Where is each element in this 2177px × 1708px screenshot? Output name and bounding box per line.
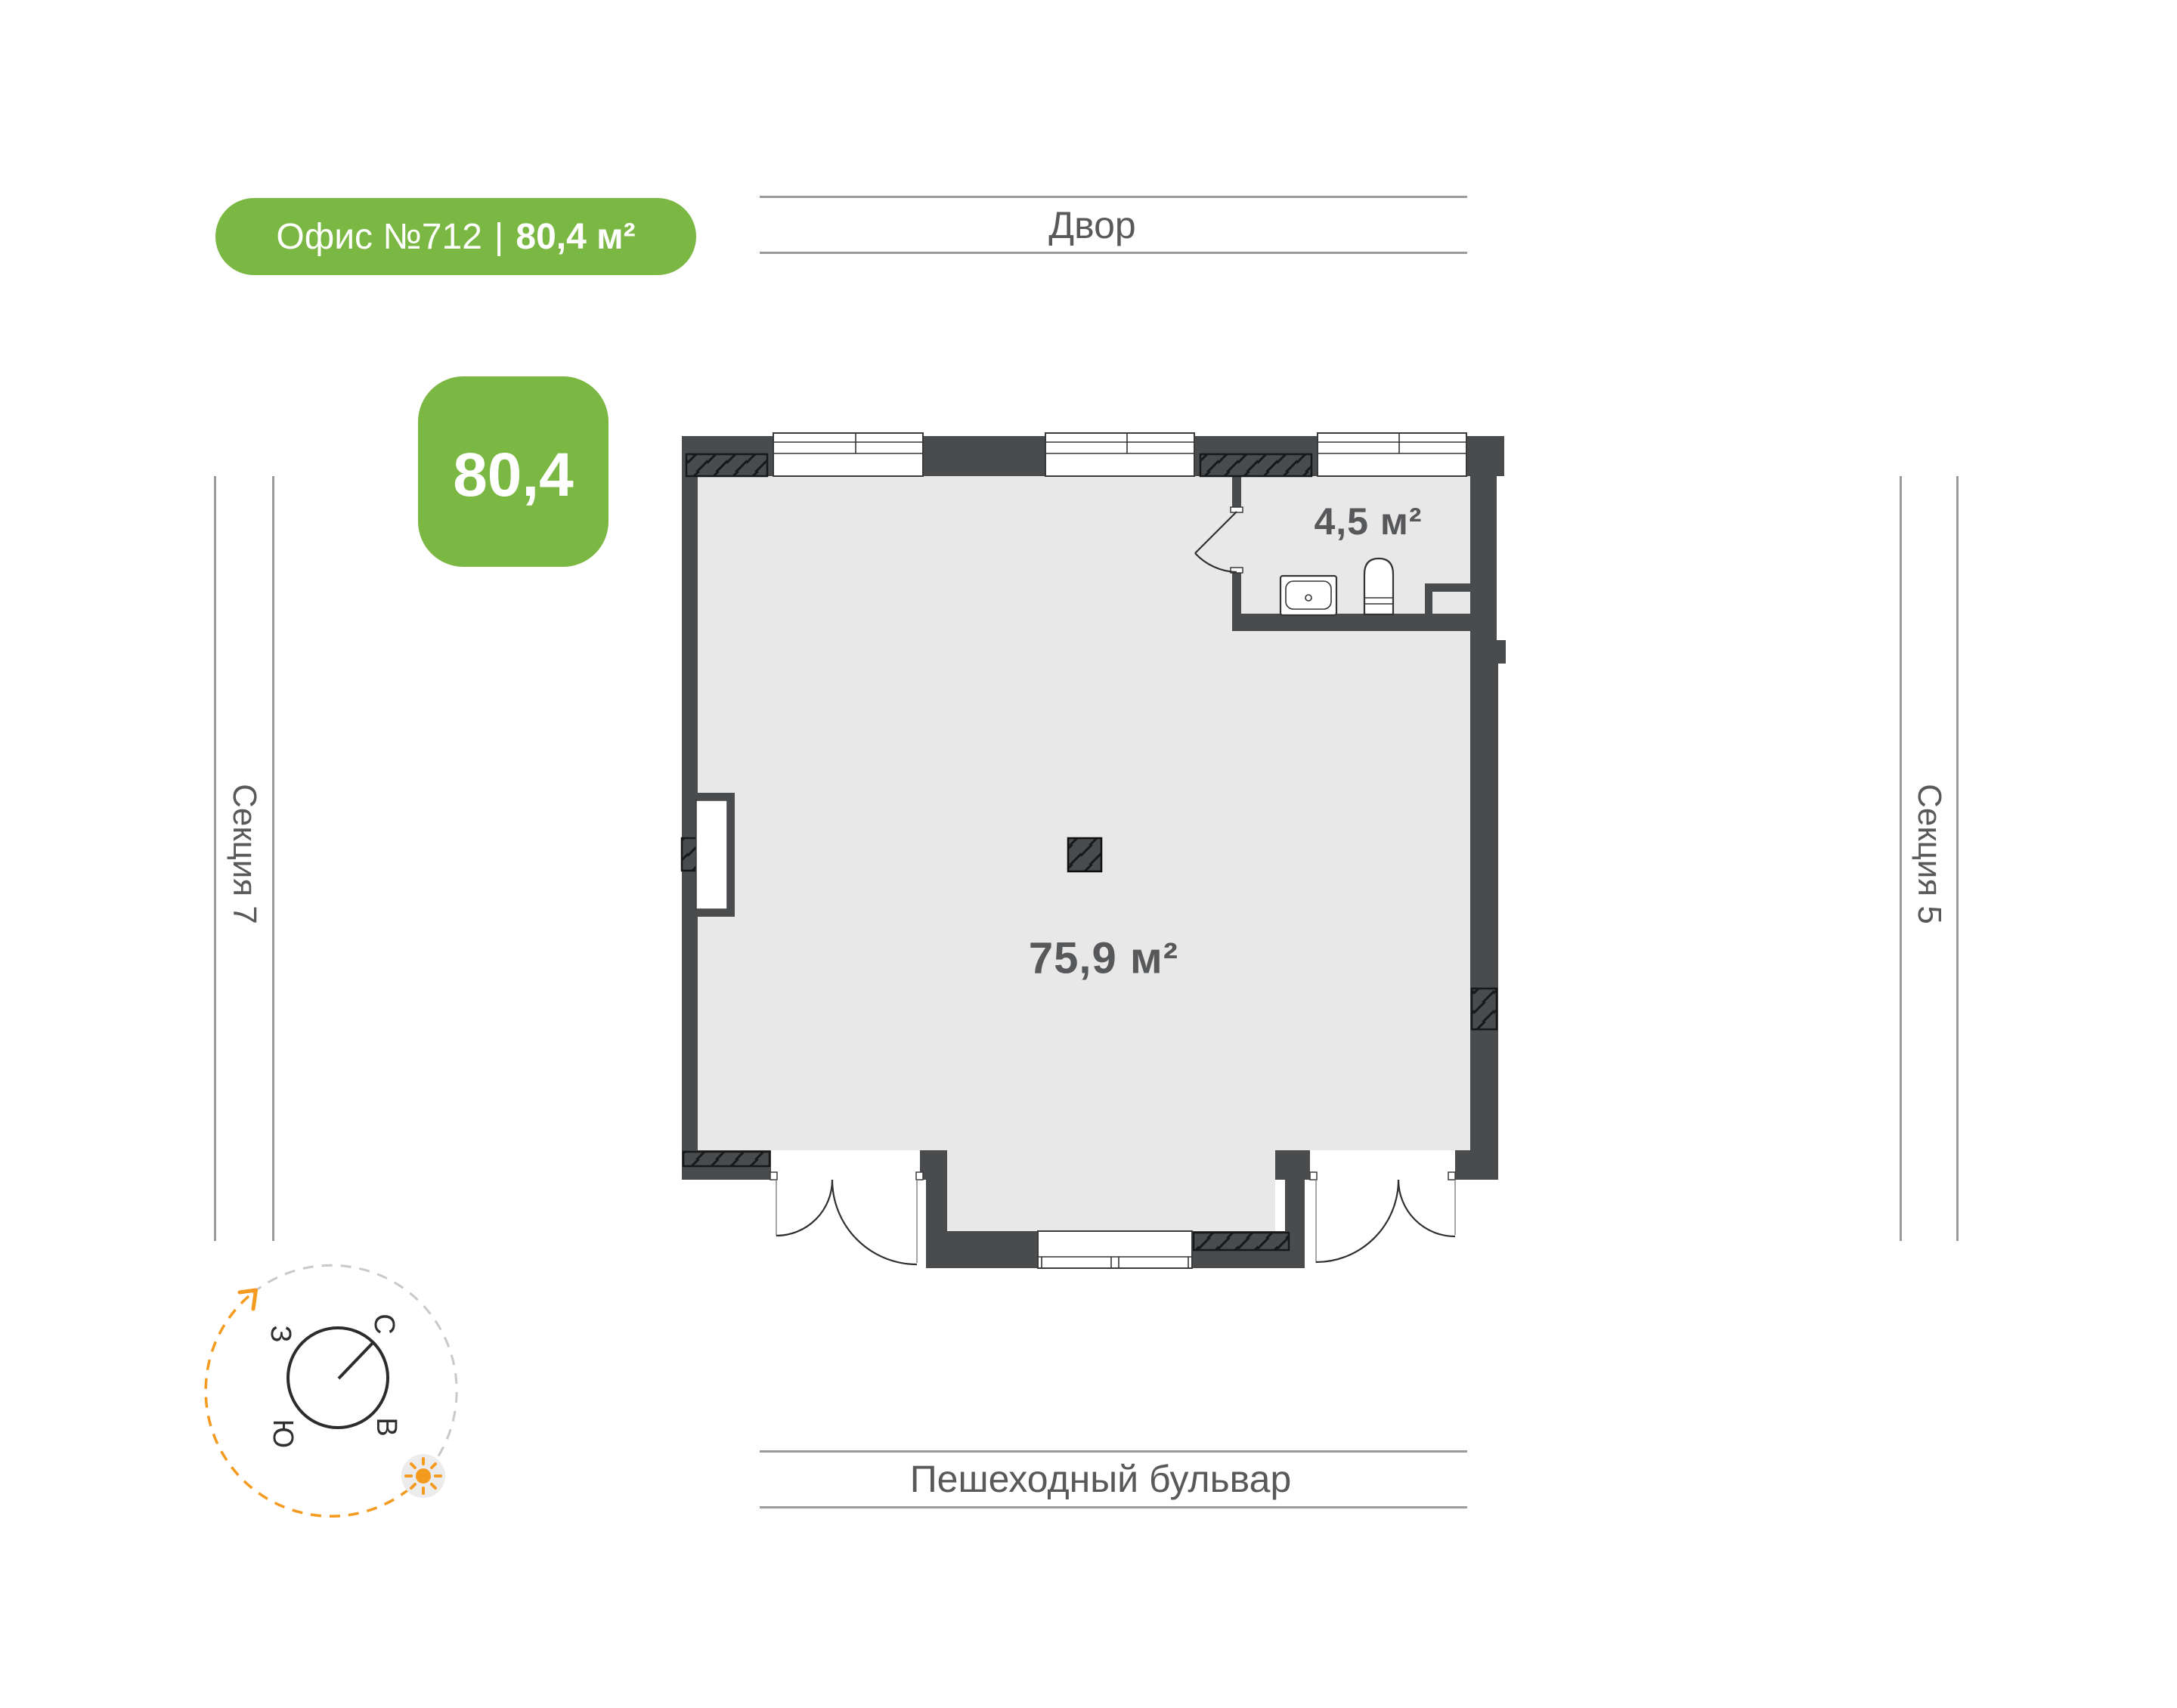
office-number: Офис №712 xyxy=(276,216,482,258)
bathroom-area-label: 4,5 м² xyxy=(1314,500,1422,543)
office-total-area: 80,4 м² xyxy=(516,216,635,258)
label-section-7: Секция 7 xyxy=(225,784,263,924)
door-left xyxy=(770,1172,923,1264)
badge-divider: | xyxy=(494,216,503,258)
top-guide-line-1 xyxy=(760,196,1467,198)
top-guide-line-2 xyxy=(760,252,1467,254)
bottom-guide-line-1 xyxy=(760,1450,1467,1453)
compass-west: З xyxy=(265,1326,296,1343)
area-tile: 80,4 xyxy=(418,376,609,567)
office-badge: Офис №712 | 80,4 м² xyxy=(215,198,696,275)
column xyxy=(1068,838,1101,871)
right-guide-line-1 xyxy=(1900,476,1902,1241)
window-top-3 xyxy=(1318,433,1466,476)
compass-south: Ю xyxy=(267,1419,299,1448)
area-tile-value: 80,4 xyxy=(453,440,574,511)
window-top-1 xyxy=(773,433,923,476)
main-room-area-label: 75,9 м² xyxy=(1029,933,1178,984)
compass-east: В xyxy=(370,1417,402,1436)
right-guide-line-2 xyxy=(1956,476,1959,1241)
bottom-guide-line-2 xyxy=(760,1506,1467,1508)
sink-icon xyxy=(1280,576,1336,615)
toilet-icon xyxy=(1364,559,1393,614)
window-vestibule xyxy=(1038,1231,1192,1268)
window-top-2 xyxy=(1045,433,1194,476)
wall-niche xyxy=(696,793,735,917)
left-guide-line-2 xyxy=(272,476,274,1241)
compass: З С Ю В xyxy=(187,1230,489,1533)
left-guide-line-1 xyxy=(214,476,216,1241)
sun-icon xyxy=(401,1454,445,1498)
door-right xyxy=(1310,1172,1455,1263)
compass-north: С xyxy=(368,1313,400,1334)
label-courtyard: Двор xyxy=(1048,203,1135,247)
label-section-5: Секция 5 xyxy=(1910,784,1948,924)
label-boulevard: Пешеходный бульвар xyxy=(910,1457,1292,1501)
